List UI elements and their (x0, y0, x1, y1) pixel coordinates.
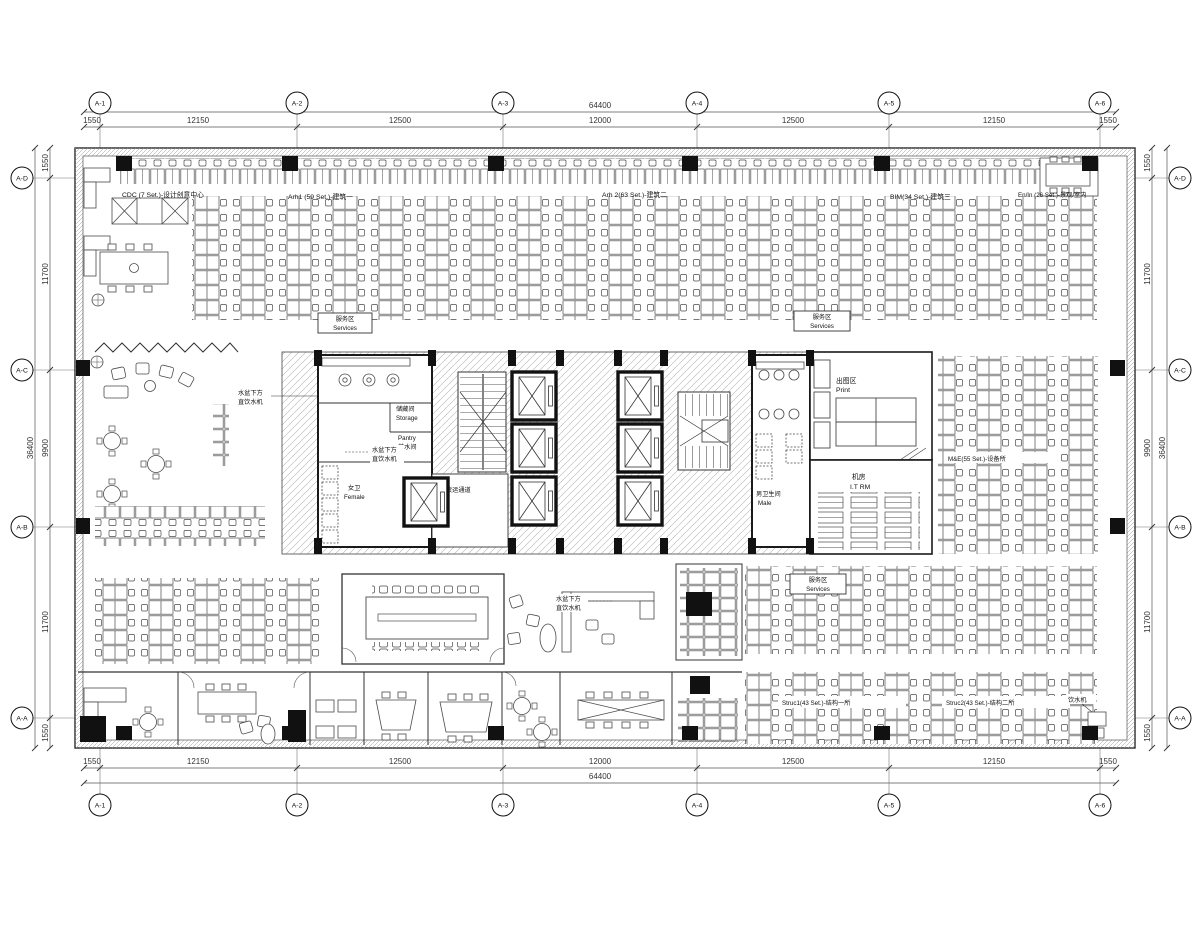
bubble-a6-top: A-6 (1095, 101, 1106, 108)
enin-label: En/In (26 Set.)-景观/室内 (1018, 191, 1086, 199)
bubble-a5-top: A-5 (884, 101, 895, 108)
dim-left-1: 11700 (41, 263, 50, 285)
dim-bot-4: 12500 (782, 757, 805, 766)
bubble-a4-bot: A-4 (692, 803, 703, 810)
cdc-label: CDC (7 Set.)-设计创意中心 (122, 190, 204, 199)
dim-right-4: 1550 (1143, 724, 1152, 742)
top-office-band: 服务区 Services 服务区 Services (84, 157, 1098, 333)
dim-bot-5: 12150 (983, 757, 1006, 766)
desk-area-top (192, 196, 1097, 320)
stair-2 (678, 392, 730, 470)
it-cn: 机房 (852, 472, 866, 481)
dim-left-0: 1550 (41, 154, 50, 172)
bubble-a5-bot: A-5 (884, 803, 895, 810)
bubble-a3-top: A-3 (498, 101, 509, 108)
bubble-a1-bot: A-1 (95, 803, 106, 810)
pantry-en: Pantry (398, 435, 417, 442)
freight-label: 货运通道 (446, 486, 471, 494)
services3-en: Services (806, 586, 830, 593)
it-en: I.T RM (850, 484, 871, 491)
water3-l1: 水盆下方 (556, 595, 581, 603)
bubble-ad-left: A-D (16, 176, 28, 183)
services-box-3: 服务区 Services (790, 574, 846, 594)
dim-right-0: 1550 (1143, 154, 1152, 172)
desk-area-bottom-left (95, 578, 323, 664)
bubble-a4-top: A-4 (692, 101, 703, 108)
water2-l1: 水盆下方 (372, 446, 397, 454)
dim-left-2: 9900 (41, 439, 50, 457)
water1-l1: 水盆下方 (238, 389, 263, 397)
dim-bot-6: 1550 (1099, 757, 1117, 766)
bubble-aa-right: A-A (1174, 716, 1186, 723)
stair-1 (458, 372, 506, 472)
services-box-2: 服务区 Services (794, 311, 850, 331)
storage-cn: 储藏间 (396, 405, 415, 413)
bubble-ac-left: A-C (16, 368, 28, 375)
male-en: Male (758, 500, 772, 507)
dim-left-3: 11700 (41, 611, 50, 633)
bubble-a2-bot: A-2 (292, 803, 303, 810)
storage-en: Storage (396, 415, 418, 422)
dim-v-total-left: 36400 (26, 436, 35, 459)
dim-top-6: 1550 (1099, 116, 1117, 125)
print-room: 出图区 Print (810, 352, 932, 460)
dim-bot-1: 12150 (187, 757, 210, 766)
dim-left-4: 1550 (41, 724, 50, 742)
dim-top-5: 12150 (983, 116, 1006, 125)
services-box-1: 服务区 Services (318, 313, 372, 333)
bubble-ab-left: A-B (16, 525, 28, 532)
arh1-label: Arh1 (59 Set.)-建筑一 (288, 192, 353, 201)
bubble-aa-left: A-A (16, 716, 28, 723)
print-en: Print (836, 387, 850, 394)
dim-right-1: 11700 (1143, 263, 1152, 285)
male-cn: 男卫生间 (756, 490, 781, 498)
server-racks (818, 492, 920, 550)
services3-cn: 服务区 (809, 576, 828, 584)
bubble-ad-right: A-D (1174, 176, 1186, 183)
services1-cn: 服务区 (336, 315, 355, 323)
bubble-ac-right: A-C (1174, 368, 1186, 375)
female-cn: 女卫 (348, 484, 360, 492)
elevator-bank-2 (618, 372, 662, 525)
bim-label: BIM(34 Set.)-建筑三 (890, 192, 951, 201)
dim-h-total-top: 64400 (589, 101, 612, 110)
it-room: 机房 I.T RM (810, 460, 932, 554)
bubble-ab-right: A-B (1174, 525, 1186, 532)
floor-plan-drawing: 64400 1550 12150 12500 12000 12500 12150… (0, 0, 1200, 942)
dim-v-total-right: 36400 (1158, 436, 1167, 459)
dim-top-0: 1550 (83, 116, 101, 125)
dim-bot-3: 12000 (589, 757, 612, 766)
water2-l2: 直饮水机 (372, 455, 398, 463)
dim-right-3: 11700 (1143, 611, 1152, 633)
bubble-a2-top: A-2 (292, 101, 303, 108)
services2-cn: 服务区 (813, 313, 832, 321)
services1-en: Services (333, 325, 357, 332)
drink-text: 饮水机 (1068, 696, 1087, 704)
bubble-a3-bot: A-3 (498, 803, 509, 810)
dim-h-total-bottom: 64400 (589, 772, 612, 781)
print-cn: 出图区 (836, 376, 857, 385)
dim-top-2: 12500 (389, 116, 412, 125)
water3-l2: 直饮水机 (556, 604, 582, 612)
arh2-label: Arh 2(63 Set.)-建筑二 (602, 190, 667, 199)
me-label: M&E(55 Set.)-设备所 (944, 452, 1056, 463)
dim-bot-2: 12500 (389, 757, 412, 766)
male-wc: 男卫生间 Male (752, 355, 810, 547)
water1-l2: 直饮水机 (238, 398, 264, 406)
dim-bot-0: 1550 (83, 757, 101, 766)
struc1-text: Struc1(43 Set.)-结构一所 (782, 699, 850, 707)
dim-top-3: 12000 (589, 116, 612, 125)
dim-top-4: 12500 (782, 116, 805, 125)
floor-plan-page: 64400 1550 12150 12500 12000 12500 12150… (0, 0, 1200, 942)
bubble-a1-top: A-1 (95, 101, 106, 108)
me-text: M&E(55 Set.)-设备所 (948, 455, 1006, 463)
freight-elevator (404, 478, 448, 526)
storeroom (676, 564, 742, 660)
desk-strip-top-wall (120, 158, 1096, 184)
female-en: Female (344, 494, 365, 501)
bubble-a6-bot: A-6 (1095, 803, 1106, 810)
struc2-text: Struc2(43 Set.)-结构二所 (946, 699, 1014, 707)
services2-en: Services (810, 323, 834, 330)
elevator-bank-1 (512, 372, 556, 525)
meeting-room-a (342, 574, 504, 664)
dim-top-1: 12150 (187, 116, 210, 125)
dim-right-2: 9900 (1143, 439, 1152, 457)
